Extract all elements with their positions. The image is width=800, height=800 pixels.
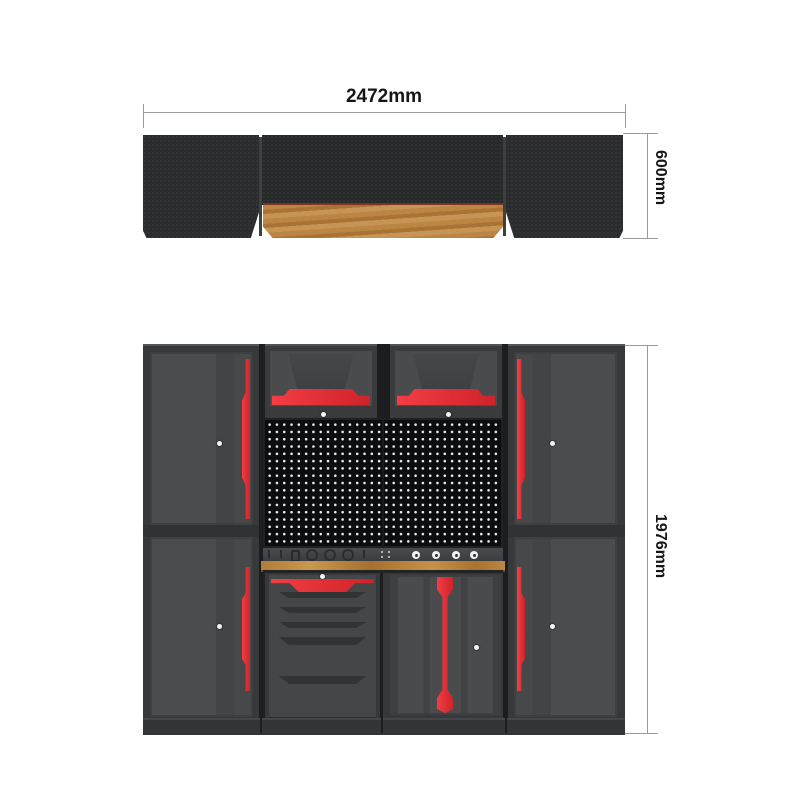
rail-peg-dot-3 (388, 551, 390, 553)
rail-slot-2 (280, 550, 282, 558)
left-cabinet-lower-door (150, 537, 253, 717)
height-dimension-line (647, 345, 648, 733)
rail-ring-1 (306, 549, 318, 561)
rail-hole-4 (470, 551, 478, 559)
left-upper-door-handle-dot (217, 441, 222, 446)
top-view-worktop-wood (263, 203, 503, 238)
height-dimension-label: 1976mm (651, 514, 669, 600)
base-gap-3 (505, 718, 507, 733)
width-dimension-tick-right (625, 104, 626, 128)
right-lower-door-red-accent (517, 567, 525, 691)
tool-rail (263, 548, 503, 561)
depth-dimension-tick-bottom (623, 238, 658, 239)
pegboard (263, 418, 503, 548)
right-lower-door-handle-dot (550, 624, 555, 629)
drawer-unit (265, 573, 380, 718)
wall-cabinet-left-red-accent (272, 389, 370, 405)
depth-dimension-line (647, 133, 648, 238)
width-dimension-line (143, 112, 625, 113)
right-cabinet-lower-door (514, 537, 617, 717)
wall-cabinet-left-door (270, 351, 372, 406)
wall-cabinet-right-handle-dot (446, 412, 451, 417)
drawer-red-accent (271, 579, 374, 592)
rail-peg-dot-1 (381, 551, 383, 553)
base-plinth (143, 718, 625, 735)
rail-peg-dot-2 (381, 556, 383, 558)
rail-peg-dot-4 (388, 556, 390, 558)
wall-cabinet-right (390, 344, 502, 419)
height-dimension-tick-top (625, 345, 658, 346)
drawer-medium (269, 637, 376, 678)
rail-ring-3 (342, 549, 354, 561)
right-upper-door-handle-dot (550, 441, 555, 446)
lower-cabinet-door (390, 575, 501, 715)
lower-door-red-accent (437, 577, 453, 713)
lower-door-cabinet (383, 573, 503, 718)
base-gap-2 (381, 718, 383, 733)
base-gap-1 (260, 718, 262, 733)
rail-hole-1 (412, 551, 420, 559)
right-tall-cabinet (508, 344, 625, 720)
wall-cabinet-left-recess (277, 354, 365, 390)
width-dimension-label: 2472mm (143, 86, 625, 108)
pegboard-center-seam (382, 418, 384, 548)
rail-ring-2 (324, 549, 336, 561)
rail-hole-3 (452, 551, 460, 559)
left-cabinet-seam (143, 525, 259, 537)
depth-dimension-label: 600mm (651, 150, 669, 226)
wall-cabinet-left-handle-dot (321, 412, 326, 417)
right-cabinet-seam (508, 525, 625, 537)
rail-slot-3 (363, 550, 365, 558)
wall-cabinet-gap (377, 344, 390, 418)
height-dimension-tick-bottom (625, 733, 658, 734)
product-dimension-diagram: 2472mm 600mm (0, 0, 800, 800)
wall-cabinet-left (265, 344, 377, 419)
right-upper-door-red-accent (517, 359, 525, 519)
drawer-unit-handle-dot (320, 574, 325, 579)
left-cabinet-upper-door (150, 352, 253, 525)
top-view-seam-right (503, 137, 506, 236)
right-cabinet-upper-door (514, 352, 617, 525)
left-lower-door-red-accent (242, 567, 250, 691)
wall-cabinet-right-door (395, 351, 497, 406)
rail-slot-1 (268, 550, 270, 558)
top-view-center-cabinets (262, 135, 503, 205)
wall-cabinet-right-red-accent (397, 389, 495, 405)
rail-hole-2 (432, 551, 440, 559)
wall-cabinet-right-recess (402, 354, 490, 390)
left-upper-door-red-accent (242, 359, 250, 519)
left-tall-cabinet (143, 344, 259, 720)
left-lower-door-handle-dot (217, 624, 222, 629)
top-view-right-cabinet (506, 135, 623, 238)
drawer-large (269, 676, 376, 719)
top-view-left-cabinet (143, 135, 259, 238)
lower-door-handle-dot (474, 645, 479, 650)
depth-dimension-tick-top (623, 133, 658, 134)
